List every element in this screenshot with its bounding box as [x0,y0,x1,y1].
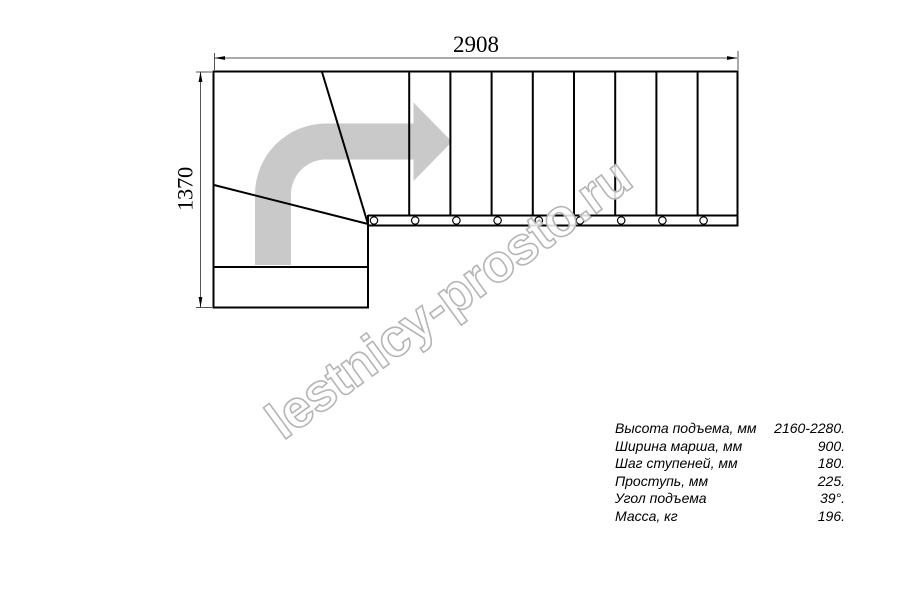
svg-text:2908: 2908 [453,32,499,57]
svg-text:1370: 1370 [173,167,198,211]
svg-text:lestnicy-prosto.ru: lestnicy-prosto.ru [255,147,642,450]
